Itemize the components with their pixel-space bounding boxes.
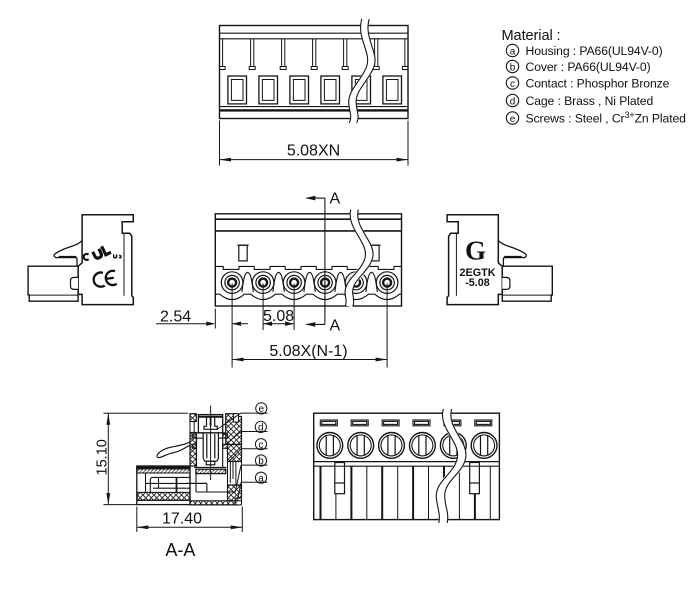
svg-text:15.10: 15.10 — [94, 439, 110, 475]
svg-text:Cage : Brass , Ni Plated: Cage : Brass , Ni Plated — [526, 94, 654, 108]
svg-text:b: b — [510, 62, 516, 73]
svg-text:Contact : Phosphor Bronze: Contact : Phosphor Bronze — [526, 76, 670, 90]
svg-text:2.54: 2.54 — [160, 309, 191, 326]
svg-text:Cover : PA66(UL94V-0): Cover : PA66(UL94V-0) — [526, 60, 651, 74]
svg-text:b: b — [258, 456, 264, 467]
svg-text:a: a — [510, 46, 516, 57]
svg-text:c: c — [510, 79, 515, 90]
svg-text:e: e — [510, 114, 516, 125]
svg-text:5.08XN: 5.08XN — [287, 143, 340, 160]
svg-text:d: d — [258, 423, 264, 434]
svg-text:A: A — [330, 318, 341, 335]
svg-text:d: d — [510, 96, 515, 107]
svg-text:5.08: 5.08 — [263, 308, 294, 325]
svg-text:c: c — [259, 440, 264, 451]
svg-text:a: a — [258, 473, 264, 484]
svg-text:Screws : Steel , Cr3+Zn Plated: Screws : Steel , Cr3+Zn Plated — [526, 110, 686, 126]
svg-text:Housing : PA66(UL94V-0): Housing : PA66(UL94V-0) — [526, 44, 663, 58]
svg-text:17.40: 17.40 — [162, 510, 202, 527]
svg-text:Material :: Material : — [502, 28, 561, 44]
svg-text:e: e — [259, 404, 265, 415]
svg-text:G: G — [465, 236, 486, 266]
svg-text:A: A — [330, 191, 341, 208]
svg-text:5.08X(N-1): 5.08X(N-1) — [269, 343, 347, 360]
svg-text:-5.08: -5.08 — [465, 277, 490, 289]
svg-text:A-A: A-A — [165, 540, 195, 560]
